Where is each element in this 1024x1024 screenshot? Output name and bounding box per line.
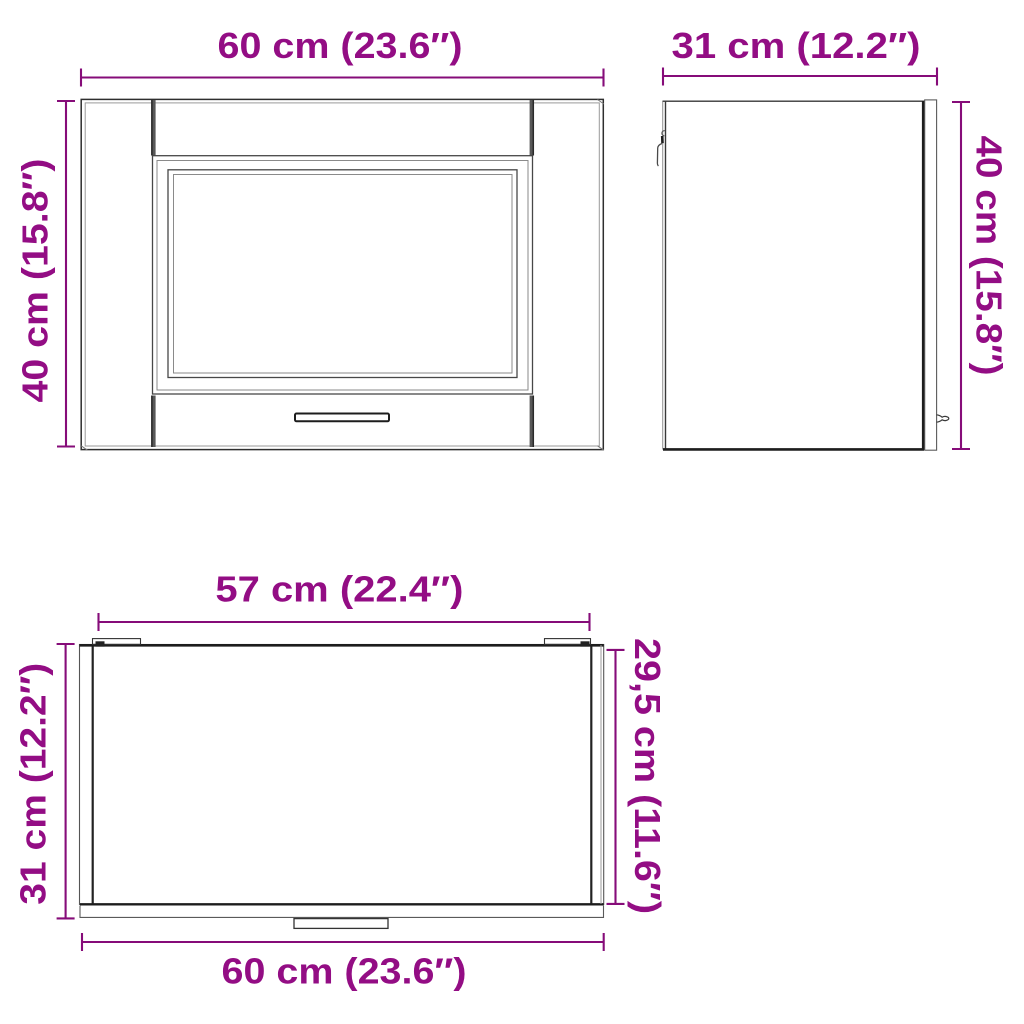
- svg-text:31 cm (12.2″): 31 cm (12.2″): [672, 25, 921, 66]
- svg-text:40 cm (15.8″): 40 cm (15.8″): [968, 136, 1009, 376]
- svg-text:60 cm (23.6″): 60 cm (23.6″): [222, 951, 467, 992]
- svg-text:60 cm (23.6″): 60 cm (23.6″): [218, 25, 463, 66]
- svg-text:31 cm (12.2″): 31 cm (12.2″): [13, 663, 54, 905]
- svg-text:57 cm (22.4″): 57 cm (22.4″): [215, 569, 463, 610]
- svg-text:40 cm (15.8″): 40 cm (15.8″): [15, 159, 56, 403]
- svg-text:29,5 cm (11.6″): 29,5 cm (11.6″): [627, 638, 668, 914]
